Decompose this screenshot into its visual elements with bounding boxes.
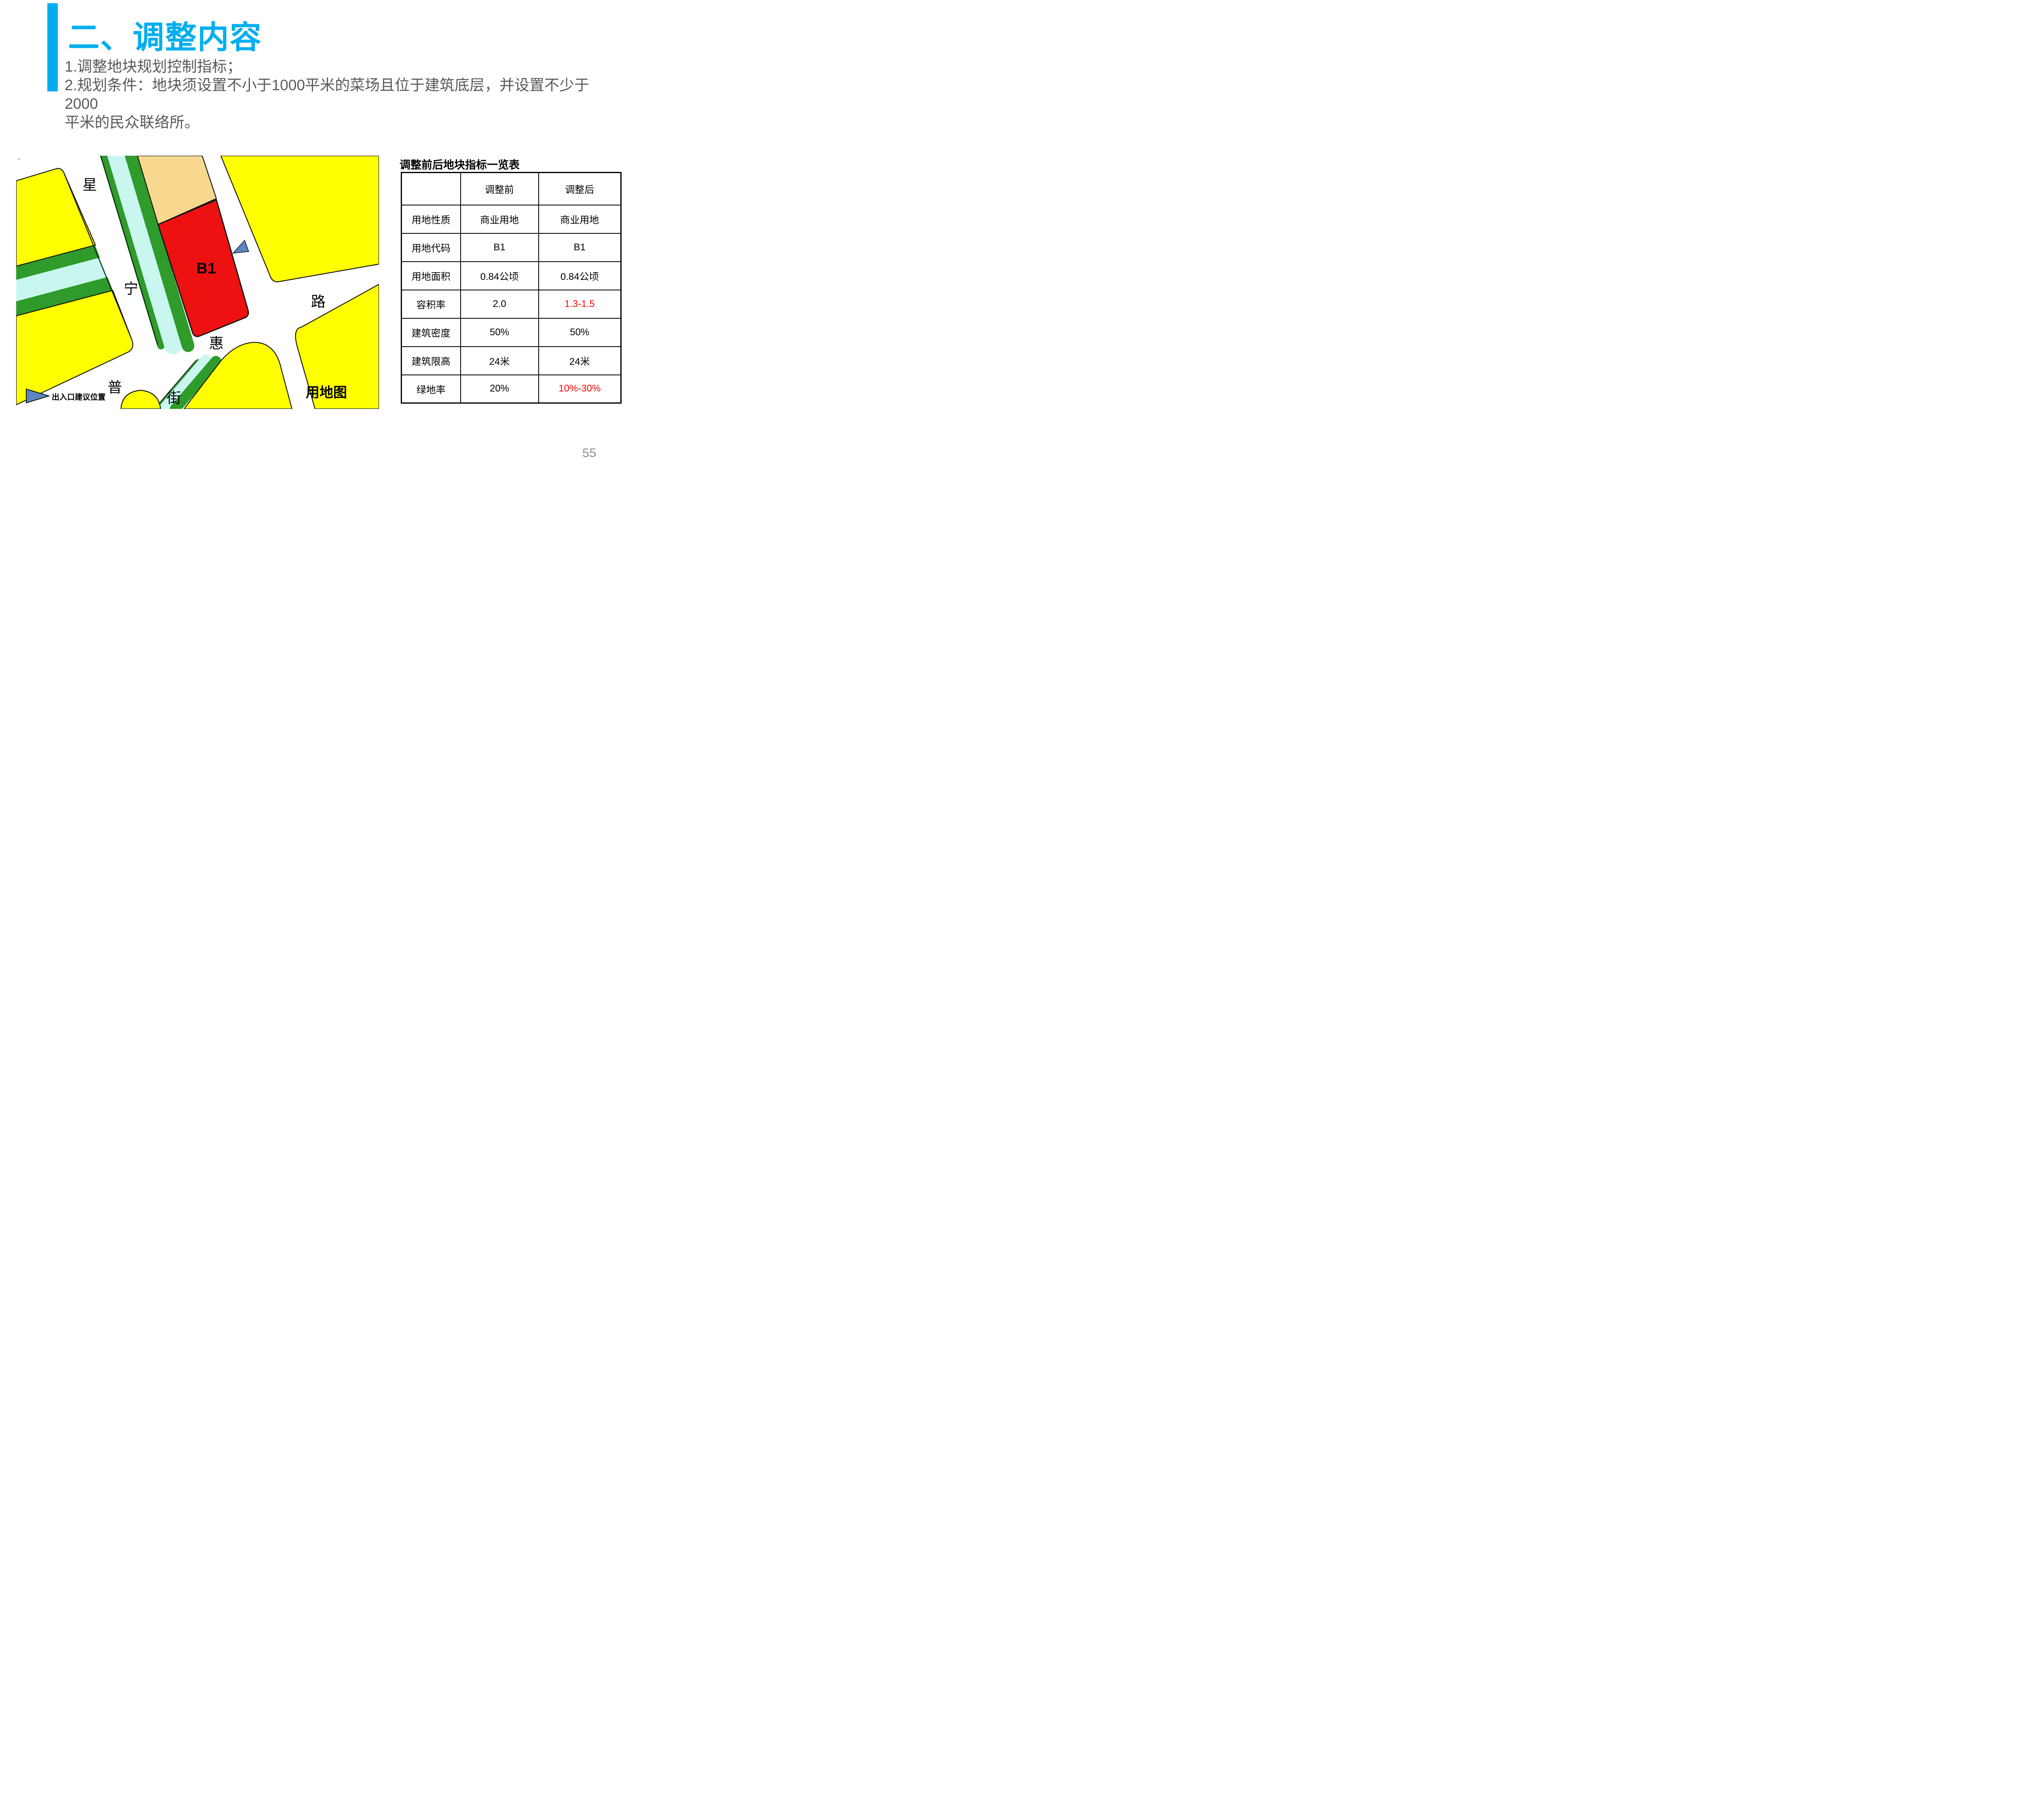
spec-table-grid: 调整前 调整后 用地性质 商业用地 商业用地 用地代码 B1 B1 用地面积 0… [401, 172, 622, 404]
table-row: 用地代码 B1 B1 [402, 233, 621, 262]
accent-bar [47, 3, 58, 91]
before-value-cell: 0.84公顷 [461, 262, 539, 290]
row-label-cell: 用地代码 [402, 233, 461, 262]
header-cell-after: 调整后 [539, 173, 621, 205]
after-value-cell: 1.3-1.5 [539, 290, 621, 318]
table-row: 容积率 2.0 1.3-1.5 [402, 290, 621, 318]
page-number: 55 [582, 446, 596, 460]
after-value-cell: 50% [539, 318, 621, 347]
land-use-map: B1 星 宁 路 惠 普 街 出入口建议位置 用地图 ~ [16, 156, 379, 409]
page-title: 二、调整内容 [68, 12, 262, 57]
row-label-cell: 建筑密度 [402, 318, 461, 347]
table-row: 用地性质 商业用地 商业用地 [402, 205, 621, 233]
corner-mark: ~ [17, 156, 21, 163]
legend-label: 出入口建议位置 [52, 392, 106, 402]
body-line-1: 1.调整地块规划控制指标； [65, 57, 611, 76]
before-value-cell: 24米 [461, 347, 539, 375]
row-label-cell: 容积率 [402, 290, 461, 318]
after-value-cell: 0.84公顷 [539, 262, 621, 290]
table-row: 绿地率 20% 10%-30% [402, 375, 621, 403]
body-text: 1.调整地块规划控制指标； 2.规划条件：地块须设置不小于1000平米的菜场且位… [65, 57, 611, 132]
body-line-3: 平米的民众联络所。 [65, 113, 611, 132]
table-row: 建筑密度 50% 50% [402, 318, 621, 347]
header-cell-blank [402, 173, 461, 205]
row-label-cell: 绿地率 [402, 375, 461, 403]
body-line-2: 2.规划条件：地块须设置不小于1000平米的菜场且位于建筑底层，并设置不少于20… [65, 76, 611, 113]
land-use-map-svg: B1 星 宁 路 惠 普 街 出入口建议位置 用地图 ~ [16, 156, 379, 409]
spec-table: 调整前 调整后 用地性质 商业用地 商业用地 用地代码 B1 B1 用地面积 0… [401, 172, 622, 404]
street-char-hui: 惠 [209, 335, 224, 351]
street-char-pu: 普 [108, 379, 122, 396]
before-value-cell: 20% [461, 375, 539, 403]
row-label-cell: 用地性质 [402, 205, 461, 233]
table-row: 用地面积 0.84公顷 0.84公顷 [402, 262, 621, 290]
before-value-cell: B1 [461, 233, 539, 262]
street-char-ning: 宁 [124, 280, 138, 297]
table-row: 建筑限高 24米 24米 [402, 347, 621, 375]
street-char-lu: 路 [311, 293, 326, 310]
table-header-row: 调整前 调整后 [402, 173, 621, 205]
row-label-cell: 建筑限高 [402, 347, 461, 375]
street-char-xing: 星 [82, 176, 97, 193]
after-value-cell: 10%-30% [539, 375, 621, 403]
before-value-cell: 商业用地 [461, 205, 539, 233]
after-value-cell: 24米 [539, 347, 621, 375]
plot-b1-label: B1 [197, 260, 216, 277]
row-label-cell: 用地面积 [402, 262, 461, 290]
after-value-cell: 商业用地 [539, 205, 621, 233]
before-value-cell: 2.0 [461, 290, 539, 318]
table-title: 调整前后地块指标一览表 [400, 156, 520, 172]
header-cell-before: 调整前 [461, 173, 539, 205]
before-value-cell: 50% [461, 318, 539, 347]
slide: 二、调整内容 1.调整地块规划控制指标； 2.规划条件：地块须设置不小于1000… [0, 0, 634, 476]
after-value-cell: B1 [539, 233, 621, 262]
street-char-jie: 街 [167, 389, 181, 406]
map-caption: 用地图 [306, 385, 347, 400]
